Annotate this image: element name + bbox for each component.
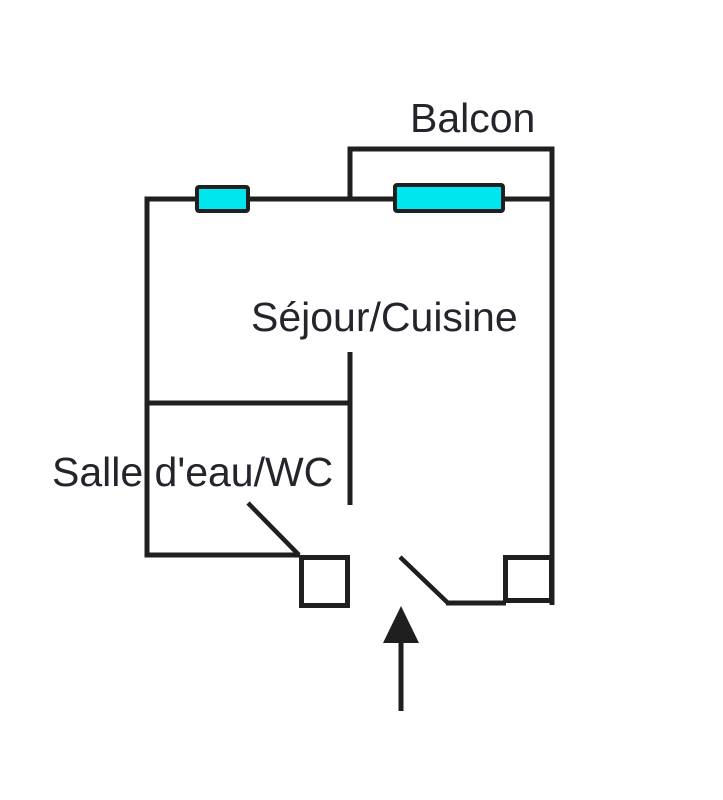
bathroom-label: Salle d'eau/WC	[52, 452, 333, 493]
entrance-arrow-icon	[383, 606, 419, 643]
entrance-jamb-left	[302, 558, 348, 606]
bathroom-door-swing	[248, 503, 299, 555]
entrance-jamb-right	[506, 558, 552, 601]
window-large	[395, 185, 503, 211]
balcony-label: Balcon	[410, 98, 535, 139]
living-kitchen-label: Séjour/Cuisine	[251, 297, 518, 338]
window-small	[197, 187, 248, 211]
entrance-door-swing	[400, 557, 449, 604]
floor-plan-drawing	[0, 0, 723, 800]
floor-plan: Balcon Séjour/Cuisine Salle d'eau/WC	[0, 0, 723, 800]
